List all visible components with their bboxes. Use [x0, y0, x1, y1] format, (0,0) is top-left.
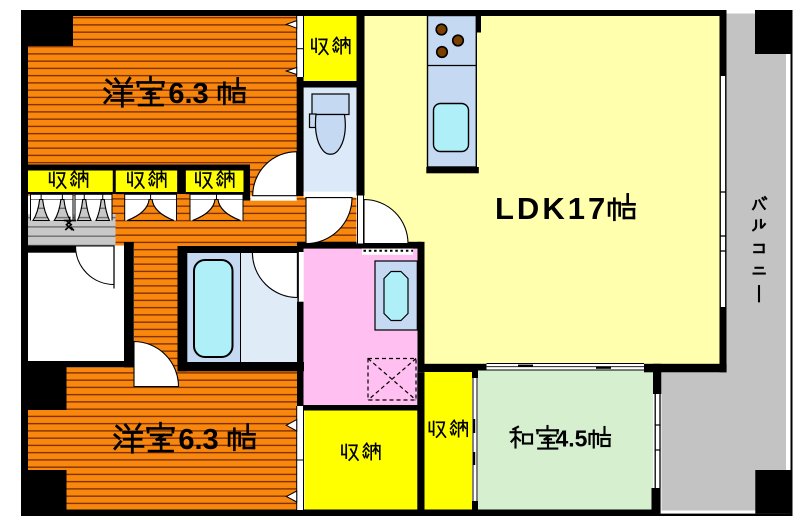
svg-text:LDK17: LDK17	[495, 191, 608, 226]
svg-text:4.5: 4.5	[556, 426, 588, 452]
svg-text:6.3: 6.3	[178, 424, 218, 456]
svg-text:6.3: 6.3	[168, 78, 208, 110]
